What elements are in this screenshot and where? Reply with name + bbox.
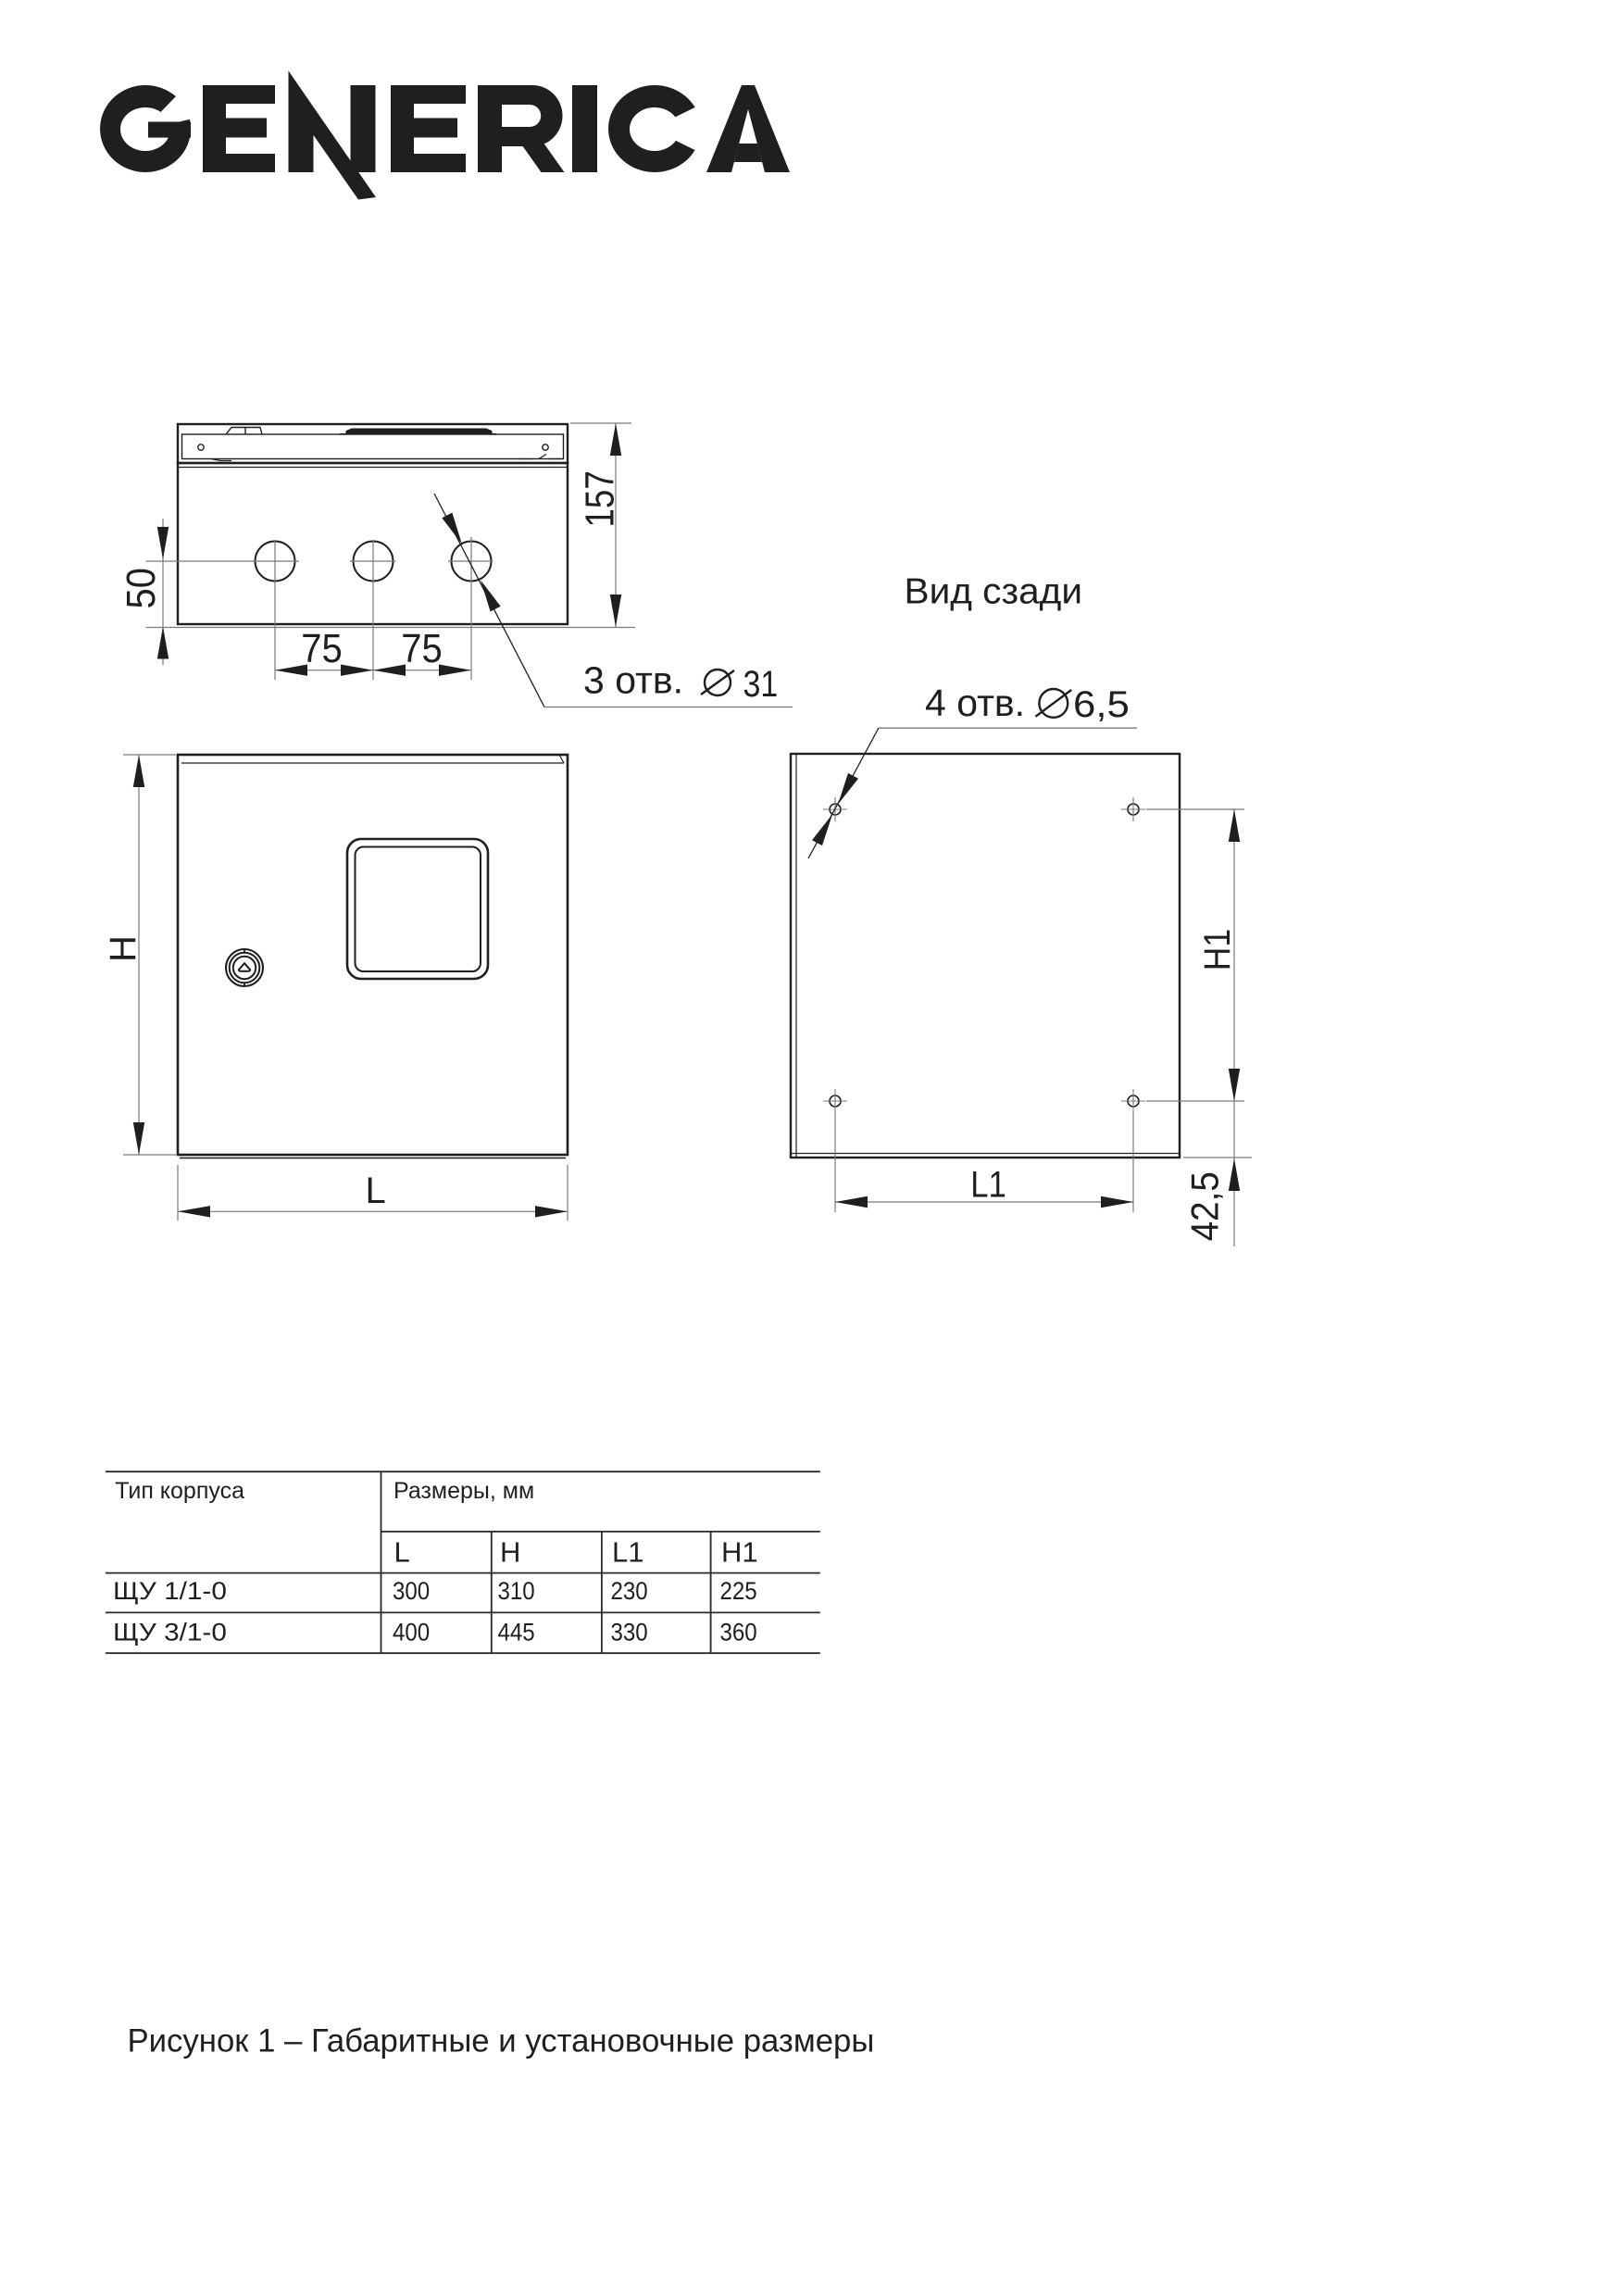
svg-text:L1: L1 — [970, 1165, 1006, 1206]
svg-text:225: 225 — [720, 1577, 757, 1605]
svg-text:6,5: 6,5 — [1073, 684, 1130, 725]
svg-text:31: 31 — [743, 664, 779, 705]
svg-text:445: 445 — [498, 1619, 535, 1646]
svg-text:300: 300 — [393, 1577, 430, 1605]
svg-text:157: 157 — [578, 470, 623, 527]
svg-text:L: L — [394, 1536, 410, 1569]
svg-text:L: L — [366, 1171, 386, 1211]
svg-text:H1: H1 — [721, 1536, 758, 1569]
svg-text:75: 75 — [301, 626, 343, 671]
svg-text:330: 330 — [611, 1619, 648, 1646]
svg-text:50: 50 — [119, 568, 164, 609]
svg-text:H1: H1 — [1197, 929, 1238, 970]
svg-text:42,5: 42,5 — [1183, 1171, 1227, 1241]
svg-text:75: 75 — [401, 626, 443, 671]
svg-text:H: H — [103, 935, 144, 962]
svg-text:400: 400 — [393, 1619, 430, 1646]
svg-text:Размеры, мм: Размеры, мм — [394, 1478, 534, 1504]
svg-text:Рисунок 1 – Габаритные и устан: Рисунок 1 – Габаритные и установочные ра… — [128, 2022, 875, 2059]
svg-text:4 отв.: 4 отв. — [925, 682, 1025, 724]
svg-text:L1: L1 — [612, 1536, 643, 1569]
svg-text:310: 310 — [498, 1577, 535, 1605]
svg-text:3 отв.: 3 отв. — [583, 659, 683, 702]
svg-text:230: 230 — [611, 1577, 648, 1605]
svg-text:360: 360 — [720, 1619, 757, 1646]
svg-text:ЩУ 1/1-0: ЩУ 1/1-0 — [113, 1577, 227, 1605]
svg-text:ЩУ 3/1-0: ЩУ 3/1-0 — [113, 1619, 227, 1646]
svg-text:Вид сзади: Вид сзади — [905, 572, 1083, 612]
svg-text:H: H — [500, 1536, 520, 1569]
svg-text:Тип корпуса: Тип корпуса — [115, 1478, 244, 1504]
